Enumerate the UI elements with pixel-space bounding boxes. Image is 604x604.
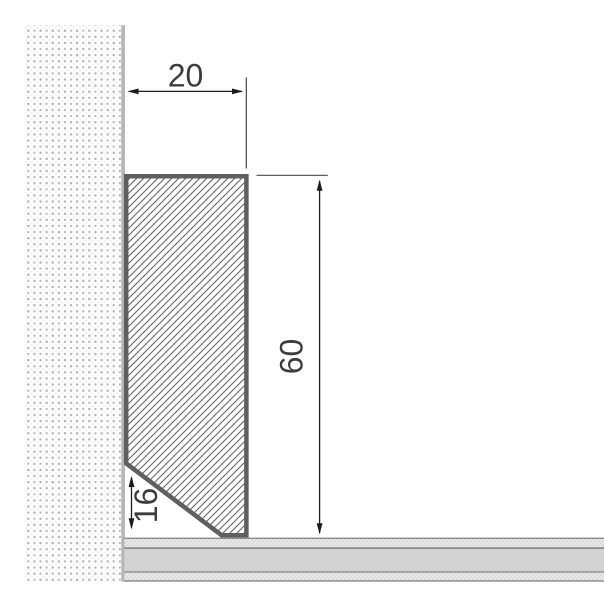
svg-text:16: 16 bbox=[128, 488, 164, 524]
svg-text:20: 20 bbox=[168, 58, 204, 94]
svg-text:60: 60 bbox=[274, 339, 310, 375]
